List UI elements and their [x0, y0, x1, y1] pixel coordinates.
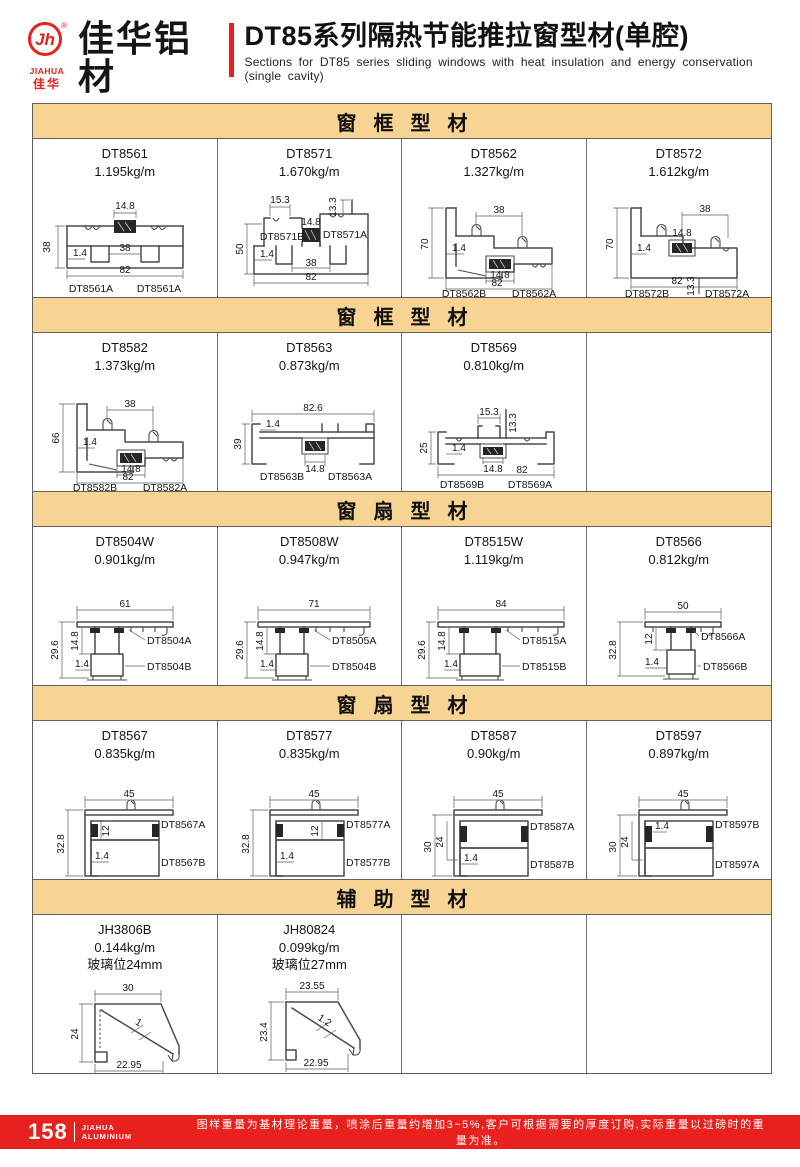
dim-wall: 1.4 — [75, 659, 89, 670]
profile-cell-dt8571: DT8571 1.670kg/m 15.3 13.3 14.8 D — [218, 139, 403, 297]
dim-left: 32.8 — [56, 834, 67, 854]
part-label-right: DT8569A — [508, 479, 552, 491]
dim-center: 14.8 — [483, 464, 503, 475]
profile-weight: 0.810kg/m — [402, 357, 586, 375]
part-label-left: DT8569B — [440, 479, 484, 491]
profile-weight: 0.873kg/m — [218, 357, 402, 375]
profile-weight: 1.195kg/m — [33, 163, 217, 181]
profile-drawing-dt8508w: 71 29.6 14.8 1.4 DT8505A DT8504B — [218, 570, 402, 685]
profile-code: DT8562 — [402, 145, 586, 163]
brand-name: 佳华铝材 — [78, 20, 215, 96]
title-divider — [229, 23, 234, 77]
profile-cell-dt8577: DT8577 0.835kg/m 45 32.8 12 — [218, 721, 403, 879]
profile-weight: 0.90kg/m — [402, 745, 586, 763]
footer-note: 图样重量为基材理论重量，喷涂后重量约增加3~5%,客户可根据需要的厚度订购,实际… — [132, 1116, 800, 1148]
profile-table: 窗框型材 DT8561 1.195kg/m 14.8 38 — [32, 103, 772, 1074]
part-label-top: DT8504A — [147, 635, 191, 647]
dim-left: 29.6 — [50, 640, 61, 660]
dim-top: 45 — [492, 789, 504, 800]
footer-brand-bottom: ALUMINIUM — [82, 1132, 132, 1141]
profile-note: 玻璃位27mm — [218, 956, 402, 974]
dim-wall: 1.4 — [280, 851, 294, 862]
catalog-page: Jh ® JIAHUA 佳华 佳华铝材 世界利中华 · 铝材用佳华 DT85系列… — [0, 0, 800, 1167]
dim-overall: 82 — [671, 276, 683, 287]
profile-weight: 0.901kg/m — [33, 551, 217, 569]
dim-wall: 1.4 — [655, 821, 669, 832]
dim-center: 14.8 — [672, 228, 692, 239]
dim-top: 30 — [122, 983, 134, 994]
part-label-bottom: DT8504B — [147, 661, 191, 673]
profile-weight: 0.812kg/m — [587, 551, 772, 569]
profile-code: DT8563 — [218, 339, 402, 357]
profile-code: DT8515W — [402, 533, 586, 551]
part-label-right: DT8571A — [322, 229, 366, 241]
dim-inner: 14.8 — [255, 631, 266, 651]
profile-weight: 0.835kg/m — [33, 745, 217, 763]
title-block: DT85系列隔热节能推拉窗型材(单腔) Sections for DT85 se… — [245, 20, 780, 83]
dim-wall: 1 — [133, 1016, 144, 1029]
profile-drawing-dt8563: 82.6 39 1.4 14.8 DT8563B DT8563A — [218, 376, 402, 491]
brand-emblem: Jh ® JIAHUA 佳华 — [24, 20, 70, 90]
footer-bar: 158 JIAHUA ALUMINIUM 图样重量为基材理论重量，喷涂后重量约增… — [0, 1115, 800, 1149]
dim-left: 25 — [419, 442, 430, 454]
part-label-bottom: DT8515B — [522, 661, 566, 673]
profile-drawing-dt8597: 45 30 24 1.4 DT8597B DT8597A — [587, 764, 771, 879]
profile-code: DT8571 — [218, 145, 402, 163]
dim-top: 38 — [699, 204, 711, 215]
part-label-left: DT8572B — [625, 288, 669, 297]
dim-top: 82.6 — [303, 403, 323, 414]
dim-left: 24 — [70, 1028, 81, 1040]
dim-wall: 1.4 — [266, 419, 280, 430]
empty-cell — [587, 333, 772, 491]
profile-cell-dt8562: DT8562 1.327kg/m 38 70 — [402, 139, 587, 297]
registered-mark: ® — [61, 21, 67, 30]
profile-cell-dt8587: DT8587 0.90kg/m 45 30 24 — [402, 721, 587, 879]
profile-weight: 1.373kg/m — [33, 357, 217, 375]
profile-weight: 0.144kg/m — [33, 939, 217, 957]
profile-drawing-dt8504w: 61 29.6 14.8 1.4 DT8504A DT8504B — [33, 570, 217, 685]
profile-note: 玻璃位24mm — [33, 956, 217, 974]
profile-drawing-dt8561: 14.8 38 1.4 38 82 DT8561A DT8561A — [33, 182, 217, 297]
jiahua-logo-icon: Jh ® — [24, 20, 70, 62]
profile-cell-dt8597: DT8597 0.897kg/m 45 30 24 — [587, 721, 772, 879]
part-label-left: DT8582B — [73, 482, 117, 491]
dim-wall: 1.4 — [637, 243, 651, 254]
dim-left: 29.6 — [417, 640, 428, 660]
profile-code: DT8582 — [33, 339, 217, 357]
section-bar-sash-2: 窗扇型材 — [33, 685, 771, 721]
part-label-bottom: DT8577B — [346, 857, 390, 869]
part-label-bottom: DT8567B — [161, 857, 205, 869]
dim-wall: 1.2 — [315, 1012, 333, 1029]
dim-inner: 12 — [644, 633, 655, 645]
dim-inner: 14.8 — [70, 631, 81, 651]
dim-top: 61 — [119, 599, 131, 610]
dim-top: 23.55 — [299, 981, 324, 992]
section-bar-sash-1: 窗扇型材 — [33, 491, 771, 527]
profile-cell-jh80824: JH80824 0.099kg/m 玻璃位27mm 23.55 23.4 1.2… — [218, 915, 403, 1073]
section-title: 辅助型材 — [320, 883, 485, 912]
section-row-4: DT8567 0.835kg/m 45 32.8 12 — [33, 721, 771, 879]
dim-left: 29.6 — [235, 640, 246, 660]
part-label-left: DT8562B — [442, 288, 486, 297]
profile-code: DT8567 — [33, 727, 217, 745]
part-label-top: DT8505A — [332, 635, 376, 647]
section-bar-frame-2: 窗框型材 — [33, 297, 771, 333]
profile-drawing-dt8569: 15.3 13.3 25 1.4 14.8 82 DT8569B DT8569A — [402, 376, 586, 491]
dim-top: 38 — [124, 399, 136, 410]
dim-wall: 1.4 — [452, 243, 466, 254]
section-bar-auxiliary: 辅助型材 — [33, 879, 771, 915]
dim-left: 70 — [605, 238, 616, 250]
part-label-left: DT8563B — [259, 471, 303, 483]
dim-inner: 12 — [310, 825, 321, 837]
profile-cell-dt8561: DT8561 1.195kg/m 14.8 38 1.4 — [33, 139, 218, 297]
part-label-bottom: DT8587B — [530, 859, 574, 871]
profile-cell-dt8566: DT8566 0.812kg/m 50 32.8 12 — [587, 527, 772, 685]
dim-top: 50 — [677, 601, 689, 612]
dim-right: 13.3 — [686, 276, 697, 296]
section-title: 窗扇型材 — [320, 495, 485, 524]
dim-wall: 1.4 — [260, 249, 274, 260]
profile-code: DT8587 — [402, 727, 586, 745]
part-label-bottom: DT8597A — [715, 859, 759, 871]
section-row-3: DT8504W 0.901kg/m 61 29.6 14.8 — [33, 527, 771, 685]
dim-center: 14.8 — [301, 217, 321, 228]
dim-overall: 82 — [491, 278, 503, 289]
profile-drawing-dt8577: 45 32.8 12 1.4 DT8577A DT8577B — [218, 764, 402, 879]
profile-code: JH80824 — [218, 921, 402, 939]
profile-cell-dt8572: DT8572 1.612kg/m 38 14.8 70 — [587, 139, 772, 297]
section-title: 窗扇型材 — [320, 689, 485, 718]
section-row-5: JH3806B 0.144kg/m 玻璃位24mm 30 24 1 22 — [33, 915, 771, 1073]
dim-left: 70 — [420, 238, 431, 250]
footer-brand: JIAHUA ALUMINIUM — [82, 1123, 132, 1142]
profile-cell-dt8563: DT8563 0.873kg/m 82.6 39 1.4 — [218, 333, 403, 491]
profile-weight: 1.670kg/m — [218, 163, 402, 181]
dim-left: 23.4 — [259, 1021, 270, 1041]
footer-brand-top: JIAHUA — [82, 1123, 132, 1132]
dim-top-right: 13.3 — [328, 197, 339, 217]
section-bar-frame-1: 窗框型材 — [33, 104, 771, 139]
dim-overall: 82 — [516, 465, 528, 476]
part-label-top: DT8587A — [530, 821, 574, 833]
profile-weight: 1.612kg/m — [587, 163, 772, 181]
profile-drawing-dt8571: 15.3 13.3 14.8 DT8571B DT8571A 50 1.4 38… — [218, 182, 402, 297]
profile-code: DT8569 — [402, 339, 586, 357]
empty-cell — [402, 915, 587, 1073]
dim-bottom: 22.95 — [116, 1060, 141, 1071]
dim-wall: 1.4 — [464, 853, 478, 864]
dim-wall: 1.4 — [95, 851, 109, 862]
section-title: 窗框型材 — [320, 107, 485, 136]
part-label-left: DT8571B — [259, 231, 303, 243]
profile-cell-dt8569: DT8569 0.810kg/m 15.3 13.3 25 — [402, 333, 587, 491]
dim-left: 38 — [42, 241, 53, 253]
dim-inner: 24 — [435, 836, 446, 848]
profile-drawing-jh80824: 23.55 23.4 1.2 22.95 — [218, 976, 402, 1073]
dim-top: 45 — [677, 789, 689, 800]
part-label-top: DT8566A — [701, 631, 745, 643]
profile-drawing-dt8566: 50 32.8 12 1.4 DT8566A DT8566B — [587, 570, 771, 685]
profile-code: DT8561 — [33, 145, 217, 163]
dim-left: 32.8 — [241, 834, 252, 854]
part-label-left: DT8561A — [69, 283, 113, 295]
brand-block: 佳华铝材 世界利中华 · 铝材用佳华 — [78, 20, 215, 114]
part-label-bottom: DT8504B — [332, 661, 376, 673]
dim-left: 66 — [51, 432, 62, 444]
section-row-2: DT8582 1.373kg/m 38 66 — [33, 333, 771, 491]
profile-weight: 0.947kg/m — [218, 551, 402, 569]
dim-left: 30 — [423, 841, 434, 853]
dim-bottom: 22.95 — [303, 1058, 328, 1069]
logo-monogram: Jh — [35, 30, 55, 49]
dim-top-left: 15.3 — [479, 407, 499, 418]
page-header: Jh ® JIAHUA 佳华 佳华铝材 世界利中华 · 铝材用佳华 DT85系列… — [24, 20, 780, 92]
dim-inner: 24 — [620, 836, 631, 848]
profile-weight: 1.119kg/m — [402, 551, 586, 569]
profile-cell-dt8508w: DT8508W 0.947kg/m 71 29.6 14.8 — [218, 527, 403, 685]
profile-cell-dt8515w: DT8515W 1.119kg/m 84 29.6 14.8 — [402, 527, 587, 685]
part-label-top: DT8567A — [161, 819, 205, 831]
dim-center: 14.8 — [305, 464, 325, 475]
page-title: DT85系列隔热节能推拉窗型材(单腔) — [245, 21, 780, 52]
dim-top: 45 — [123, 789, 135, 800]
part-label-top: DT8597B — [715, 819, 759, 831]
dim-top-left: 15.3 — [270, 195, 290, 206]
dim-inner: 38 — [119, 243, 131, 254]
profile-drawing-dt8515w: 84 29.6 14.8 1.4 DT8515A DT8515B — [402, 570, 586, 685]
section-row-1: DT8561 1.195kg/m 14.8 38 1.4 — [33, 139, 771, 297]
profile-drawing-dt8572: 38 14.8 70 1.4 82 13.3 DT8572B DT8572A — [587, 182, 771, 297]
profile-drawing-dt8567: 45 32.8 12 1.4 DT8567A DT8567B — [33, 764, 217, 879]
dim-top: 84 — [495, 599, 507, 610]
dim-inner: 38 — [305, 258, 317, 269]
profile-code: JH3806B — [33, 921, 217, 939]
profile-cell-dt8582: DT8582 1.373kg/m 38 66 — [33, 333, 218, 491]
profile-code: DT8572 — [587, 145, 772, 163]
section-title: 窗框型材 — [320, 301, 485, 330]
dim-top: 45 — [308, 789, 320, 800]
part-label-top: DT8577A — [346, 819, 390, 831]
footer-divider — [74, 1122, 75, 1142]
profile-cell-jh3806b: JH3806B 0.144kg/m 玻璃位24mm 30 24 1 22 — [33, 915, 218, 1073]
dim-top: 14.8 — [115, 201, 135, 212]
dim-overall: 82 — [305, 272, 317, 283]
profile-code: DT8508W — [218, 533, 402, 551]
part-label-bottom: DT8566B — [703, 661, 747, 673]
profile-weight: 0.099kg/m — [218, 939, 402, 957]
dim-wall: 1.4 — [83, 437, 97, 448]
profile-weight: 1.327kg/m — [402, 163, 586, 181]
profile-weight: 0.835kg/m — [218, 745, 402, 763]
profile-cell-dt8504w: DT8504W 0.901kg/m 61 29.6 14.8 — [33, 527, 218, 685]
profile-drawing-dt8582: 38 66 1.4 14.8 82 DT8582B DT8582A — [33, 376, 217, 491]
profile-code: DT8504W — [33, 533, 217, 551]
profile-code: DT8566 — [587, 533, 772, 551]
dim-top: 38 — [493, 205, 505, 216]
profile-drawing-dt8587: 45 30 24 1.4 DT8587A DT8587B — [402, 764, 586, 879]
profile-weight: 0.897kg/m — [587, 745, 772, 763]
dim-left: 32.8 — [608, 640, 619, 660]
part-label-right: DT8561A — [137, 283, 181, 295]
dim-left: 30 — [608, 841, 619, 853]
dim-overall: 82 — [122, 472, 134, 483]
page-subtitle: Sections for DT85 series sliding windows… — [245, 55, 780, 83]
dim-top: 71 — [308, 599, 320, 610]
page-number: 158 — [28, 1119, 68, 1145]
profile-cell-dt8567: DT8567 0.835kg/m 45 32.8 12 — [33, 721, 218, 879]
profile-drawing-dt8562: 38 70 1.4 14.8 82 DT8562B DT8562A — [402, 182, 586, 297]
dim-wall: 1.4 — [444, 659, 458, 670]
profile-code: DT8577 — [218, 727, 402, 745]
profile-code: DT8597 — [587, 727, 772, 745]
brand-en: JIAHUA — [24, 67, 70, 76]
dim-left: 39 — [233, 438, 244, 450]
dim-inner: 12 — [101, 825, 112, 837]
dim-top-right: 13.3 — [508, 413, 519, 433]
part-label-right: DT8572A — [705, 288, 749, 297]
brand-cn-small: 佳华 — [24, 78, 70, 90]
part-label-right: DT8582A — [143, 482, 187, 491]
dim-wall: 1.4 — [73, 248, 87, 259]
dim-wall: 1.4 — [645, 657, 659, 668]
dim-overall: 82 — [119, 265, 131, 276]
part-label-top: DT8515A — [522, 635, 566, 647]
part-label-right: DT8562A — [512, 288, 556, 297]
dim-left: 50 — [235, 243, 246, 255]
part-label-right: DT8563A — [327, 471, 371, 483]
dim-wall: 1.4 — [452, 443, 466, 454]
dim-inner: 14.8 — [437, 631, 448, 651]
profile-drawing-jh3806b: 30 24 1 22.95 — [33, 976, 217, 1073]
dim-wall: 1.4 — [260, 659, 274, 670]
empty-cell — [587, 915, 772, 1073]
